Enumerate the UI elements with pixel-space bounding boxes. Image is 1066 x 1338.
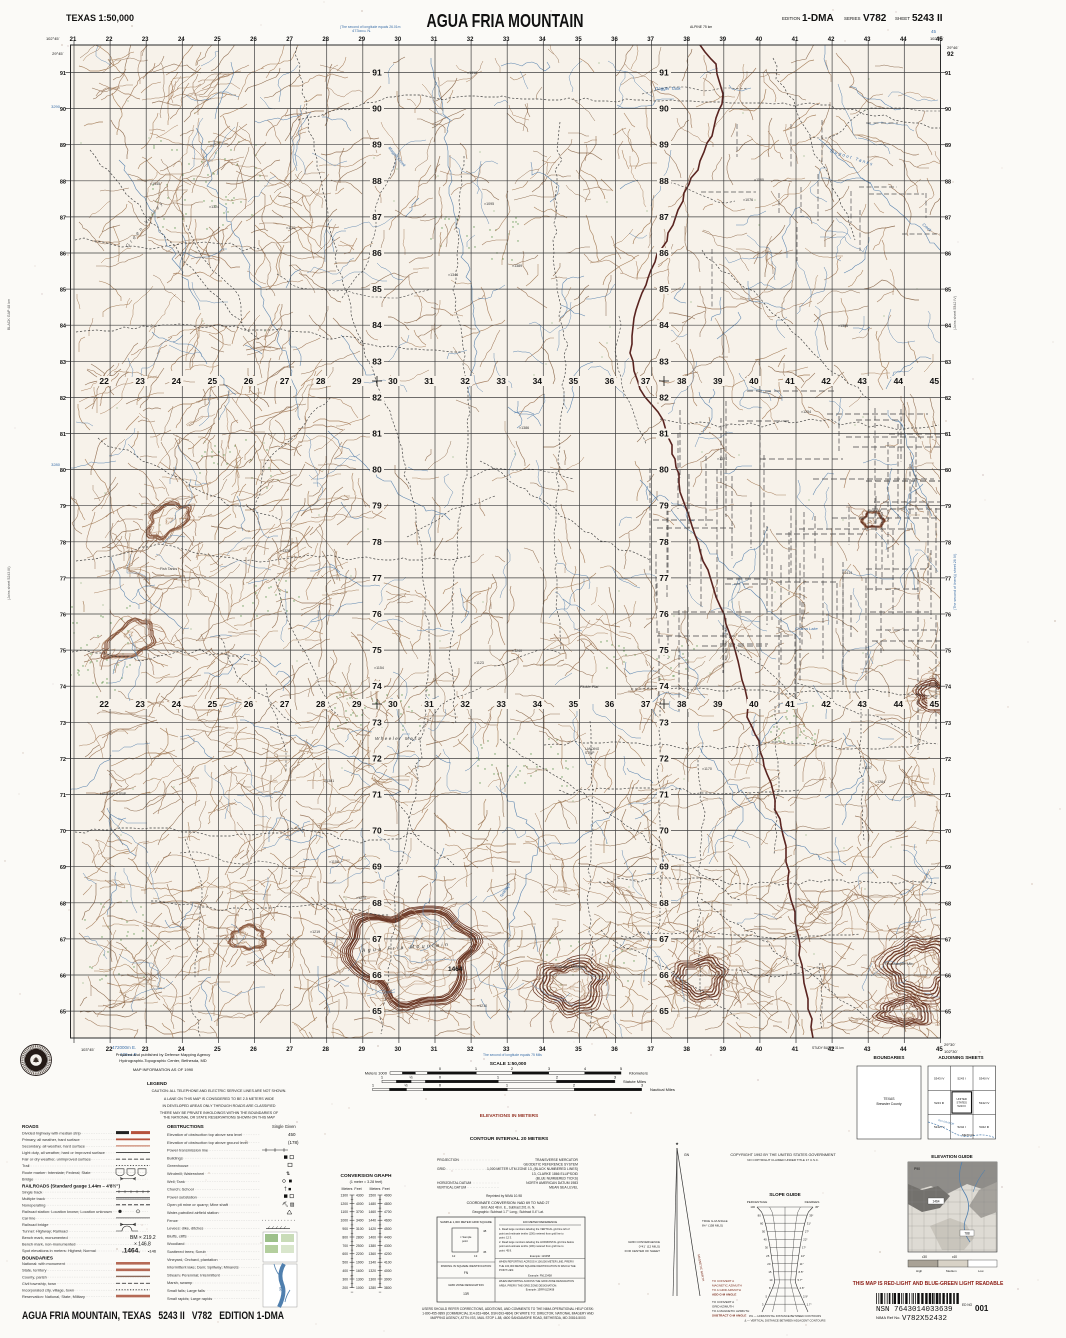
svg-text:3290: 3290	[51, 104, 61, 109]
svg-text:1420: 1420	[368, 1227, 376, 1231]
svg-text:38: 38	[677, 699, 687, 709]
svg-text:The second of longitude equals: The second of longitude equals 75 Mils	[483, 1053, 542, 1057]
svg-text:29: 29	[358, 1047, 365, 1053]
svg-text:THERE MAY BE PRIVATE INHOL: THERE MAY BE PRIVATE INHOLDINGS WITHIN T…	[160, 1111, 279, 1115]
svg-text:81: 81	[60, 432, 66, 438]
svg-text:82: 82	[659, 392, 669, 402]
svg-text:1440: 1440	[368, 1219, 376, 1223]
svg-text:1280: 1280	[368, 1286, 376, 1290]
svg-text:×1180: ×1180	[754, 178, 764, 182]
svg-text:Fair or dry weather, unimprove: Fair or dry weather, unimproved surface	[22, 1157, 91, 1162]
svg-text:STRIP: STRIP	[585, 751, 594, 755]
svg-text:31°: 31°	[807, 1221, 811, 1225]
svg-text:point and estimate tenths (100: point and estimate tenths (100) metered …	[499, 1231, 564, 1235]
svg-text:66: 66	[60, 974, 66, 980]
svg-text:28: 28	[322, 1047, 329, 1053]
svg-text:3: 3	[614, 1075, 617, 1080]
svg-text:70: 70	[60, 829, 66, 835]
svg-text:Bench mark, monumented: Bench mark, monumented	[22, 1235, 68, 1240]
svg-text:Example: FN123458: Example: FN123458	[528, 1274, 552, 1278]
svg-text:Wheeler Mesa: Wheeler Mesa	[375, 736, 422, 741]
svg-text:Primary, all weather, hard sur: Primary, all weather, hard surface	[22, 1137, 80, 1142]
svg-text:AGUA FRIA MOUNTAIN, TEXAS 52: AGUA FRIA MOUNTAIN, TEXAS 5243 II V782 E…	[22, 1310, 284, 1322]
svg-text:COORDINATE CONVERSION: NAD 69: COORDINATE CONVERSION: NAD 69 TO NAD 27	[467, 1201, 550, 1205]
svg-text:45°: 45°	[815, 1205, 819, 1209]
svg-text:87: 87	[372, 212, 382, 222]
svg-text:5342 IV: 5342 IV	[979, 1101, 989, 1105]
svg-text:VERTICAL DATUM: VERTICAL DATUM	[437, 1186, 466, 1190]
svg-text:39: 39	[713, 376, 723, 386]
svg-text:Reservation: National, State,: Reservation: National, State, Military	[22, 1294, 85, 1299]
svg-text:25: 25	[208, 376, 218, 386]
svg-text:Grid: Add 48 m. E., Subtra: Grid: Add 48 m. E., Subtract 201 m. N.	[481, 1206, 536, 1210]
svg-text:Dagger Tank: Dagger Tank	[655, 86, 681, 91]
svg-text:FOR CENTER OF SHEET: FOR CENTER OF SHEET	[625, 1249, 661, 1253]
svg-text:×1154: ×1154	[374, 666, 384, 670]
svg-text:Bridge: Bridge	[22, 1176, 33, 1181]
svg-text:102°30´: 102°30´	[944, 1049, 958, 1054]
svg-text:ELEVATIONS IN METERS: ELEVATIONS IN METERS	[480, 1113, 539, 1119]
svg-text:70: 70	[659, 826, 669, 836]
svg-text:69: 69	[372, 862, 382, 872]
svg-text:1: 1	[497, 1075, 500, 1080]
svg-text:Secondary, all weather, hard s: Secondary, all weather, hard surface	[22, 1144, 85, 1149]
svg-text:21: 21	[70, 37, 77, 43]
svg-text:TO CONVERT A: TO CONVERT A	[712, 1300, 734, 1304]
svg-text:5243 I: 5243 I	[958, 1077, 967, 1081]
svg-text:Single track: Single track	[22, 1189, 42, 1194]
svg-text:Multiple track: Multiple track	[22, 1196, 45, 1201]
svg-text:74: 74	[60, 685, 67, 691]
svg-text:.1464.: .1464.	[122, 1247, 140, 1254]
svg-text:5342 III: 5342 III	[979, 1125, 989, 1129]
svg-text:8¾° (158 MILS): 8¾° (158 MILS)	[702, 1224, 723, 1228]
svg-text:1300: 1300	[340, 1193, 348, 1197]
svg-text:24: 24	[172, 376, 182, 386]
svg-text:MAGNETIC NORTH: MAGNETIC NORTH	[697, 1254, 706, 1282]
svg-text:72: 72	[372, 753, 382, 763]
svg-text:68: 68	[659, 898, 669, 908]
svg-text:80: 80	[758, 1213, 762, 1217]
svg-text:71: 71	[659, 790, 669, 800]
svg-text:45: 45	[930, 699, 940, 709]
svg-text:29°45´: 29°45´	[52, 51, 64, 56]
svg-text:TEXAS 1:50,000: TEXAS 1:50,000	[66, 13, 134, 23]
svg-text:79: 79	[372, 501, 382, 511]
svg-text:44: 44	[900, 1047, 907, 1053]
svg-text:HORIZONTAL DATUM: HORIZONTAL DATUM	[437, 1181, 471, 1185]
svg-text:37: 37	[641, 699, 651, 709]
svg-text:22: 22	[99, 376, 109, 386]
svg-text:80: 80	[60, 468, 66, 474]
svg-text:MEXICO: MEXICO	[962, 1133, 975, 1137]
svg-text:1380: 1380	[368, 1244, 376, 1248]
svg-text:83: 83	[659, 356, 669, 366]
svg-text:13R: 13R	[463, 1292, 470, 1296]
svg-text:17°: 17°	[802, 1246, 806, 1250]
svg-text:⛏ ▨: ⛏ ▨	[282, 1201, 295, 1208]
svg-text:2: 2	[556, 1075, 559, 1080]
svg-text:Example: 13RFN123458: Example: 13RFN123458	[526, 1288, 555, 1292]
svg-text:NO COPYRIGHT CLAIMED UNDER TIT: NO COPYRIGHT CLAIMED UNDER TITLE 17 U.S.…	[747, 1158, 819, 1162]
svg-text:69: 69	[60, 865, 66, 871]
svg-text:FINDING IN SQUARE IDENTIFIC: FINDING IN SQUARE IDENTIFICATION	[441, 1264, 491, 1268]
svg-text:1464: 1464	[932, 1200, 939, 1204]
svg-text:NORTH AMERICAN DATUM 1983: NORTH AMERICAN DATUM 1983	[526, 1181, 578, 1185]
svg-text:Small rapids; Large rapids: Small rapids; Large rapids	[167, 1296, 212, 1301]
svg-text:79: 79	[60, 504, 66, 510]
svg-text:5242 I: 5242 I	[958, 1125, 967, 1129]
svg-text:•146: •146	[148, 1248, 157, 1253]
svg-text:31: 31	[431, 1047, 438, 1053]
svg-text:×1345: ×1345	[150, 182, 160, 186]
svg-text:1300: 1300	[368, 1277, 376, 1281]
svg-text:SERIES: SERIES	[844, 16, 861, 21]
svg-text:76: 76	[659, 609, 669, 619]
svg-text:27: 27	[280, 376, 290, 386]
svg-text:30: 30	[395, 37, 402, 43]
svg-text:OBSTRUCTIONS: OBSTRUCTIONS	[167, 1124, 204, 1129]
svg-text:Scattered trees; Scrub: Scattered trees; Scrub	[167, 1249, 206, 1254]
svg-text:36: 36	[611, 1047, 618, 1053]
svg-text:1400: 1400	[368, 1235, 376, 1239]
svg-text:36: 36	[611, 37, 618, 43]
svg-text:45: 45	[483, 1250, 487, 1254]
svg-text:5343 IV: 5343 IV	[934, 1077, 944, 1081]
svg-text:33: 33	[496, 699, 506, 709]
svg-text:28: 28	[316, 699, 326, 709]
svg-text:32: 32	[467, 37, 474, 43]
svg-text:4000: 4000	[356, 1202, 364, 1206]
svg-text:1340: 1340	[368, 1261, 376, 1265]
svg-text:11°: 11°	[800, 1262, 804, 1266]
svg-text:77: 77	[60, 576, 66, 582]
svg-text:3800: 3800	[384, 1286, 392, 1290]
svg-text:75: 75	[60, 649, 66, 655]
svg-text:36: 36	[605, 699, 615, 709]
svg-text:SAMPLE 1,000 METER GRID SQ: SAMPLE 1,000 METER GRID SQUARE	[440, 1220, 492, 1224]
svg-text:88: 88	[60, 179, 66, 185]
svg-text:×1324: ×1324	[209, 205, 219, 209]
svg-text:39: 39	[719, 1047, 726, 1053]
svg-text:3: 3	[548, 1066, 551, 1071]
svg-text:88: 88	[659, 176, 669, 186]
svg-text:1.7°: 1.7°	[807, 1302, 812, 1306]
svg-text:74: 74	[945, 685, 952, 691]
svg-text:74: 74	[659, 681, 669, 691]
svg-text:×1210: ×1210	[477, 1004, 487, 1008]
svg-text:2800: 2800	[356, 1235, 364, 1239]
svg-text:FN: FN	[464, 1271, 469, 1275]
svg-text:89: 89	[372, 140, 382, 150]
svg-text:25: 25	[214, 1047, 221, 1053]
svg-text:77: 77	[945, 576, 951, 582]
svg-text:86: 86	[60, 252, 66, 258]
svg-text:1300: 1300	[356, 1277, 364, 1281]
svg-text:103°45´: 103°45´	[81, 1047, 95, 1052]
svg-text:200: 200	[342, 1286, 348, 1290]
svg-text:×1324: ×1324	[717, 457, 727, 461]
svg-text:4400: 4400	[384, 1235, 392, 1239]
svg-text:1480: 1480	[368, 1202, 376, 1206]
svg-text:4800: 4800	[384, 1202, 392, 1206]
svg-text:39: 39	[719, 37, 726, 43]
svg-text:4700: 4700	[384, 1210, 392, 1214]
svg-text:33: 33	[496, 376, 506, 386]
svg-text:BOUNDARIES: BOUNDARIES	[22, 1255, 53, 1260]
svg-text:80: 80	[659, 465, 669, 475]
svg-text:THE 100,000 METER SQUARE I: THE 100,000 METER SQUARE IDENTIFICATION …	[499, 1264, 576, 1268]
svg-text:High: High	[916, 1269, 923, 1273]
svg-text:4500: 4500	[384, 1227, 392, 1231]
svg-text:4.6°: 4.6°	[800, 1286, 805, 1290]
svg-text:41: 41	[792, 37, 799, 43]
svg-text:×1167: ×1167	[862, 766, 872, 770]
svg-text:2. Read large numbers labelin: 2. Read large numbers labeling the HORIZ…	[499, 1240, 574, 1244]
svg-text:42: 42	[828, 37, 835, 43]
svg-text:GEODETIC REFERENCE SYSTEM: GEODETIC REFERENCE SYSTEM	[524, 1163, 579, 1167]
svg-text:300: 300	[342, 1277, 348, 1281]
svg-text:32: 32	[460, 699, 470, 709]
svg-text:800: 800	[342, 1235, 348, 1239]
svg-text:Feet: Feet	[354, 1187, 361, 1191]
svg-text:Geographic: Subtract 1.7" Lo: Geographic: Subtract 1.7" Long.; Subtrac…	[472, 1210, 544, 1214]
svg-text:1000: 1000	[340, 1219, 348, 1223]
svg-text:1-800-455-0899 (COMMERCIAL 314: 1-800-455-0899 (COMMERCIAL 314-263-4864,…	[422, 1312, 594, 1316]
svg-text:BLACK GAP 48 km: BLACK GAP 48 km	[7, 299, 11, 330]
svg-text:Example: 123458: Example: 123458	[530, 1254, 551, 1258]
svg-text:DEGREES: DEGREES	[805, 1200, 820, 1204]
svg-text:PERCENTAGE: PERCENTAGE	[747, 1200, 767, 1204]
svg-text:Church; School: Church; School	[167, 1187, 194, 1192]
svg-text:1464: 1464	[448, 966, 463, 973]
svg-text:Meters: Meters	[342, 1187, 353, 1191]
svg-text:23: 23	[135, 699, 145, 709]
svg-text:point: 12 3.: point: 12 3.	[499, 1236, 512, 1240]
svg-text:IN DEVELOPED AREAS ONLY TH: IN DEVELOPED AREAS ONLY THROUGH ROADS AR…	[162, 1104, 275, 1108]
svg-text:Marsh, swamp: Marsh, swamp	[167, 1280, 192, 1285]
svg-text:26: 26	[250, 1047, 257, 1053]
svg-text:0: 0	[439, 1083, 442, 1088]
svg-text:75: 75	[945, 649, 951, 655]
svg-text:27: 27	[286, 37, 293, 43]
svg-text:point: 45 8.: point: 45 8.	[499, 1249, 512, 1253]
svg-text:5243 II: 5243 II	[957, 1104, 966, 1108]
svg-text:68: 68	[372, 898, 382, 908]
svg-text:26: 26	[250, 37, 257, 43]
svg-text:NSN 7643014033639: NSN 7643014033639	[876, 1306, 953, 1314]
svg-text:TRUE G-M ANGLE: TRUE G-M ANGLE	[702, 1219, 728, 1223]
svg-text:80: 80	[945, 468, 951, 474]
svg-text:(178): (178)	[288, 1140, 299, 1145]
svg-text:Vineyard, Orchard, plantation: Vineyard, Orchard, plantation	[167, 1257, 218, 1262]
svg-text:77: 77	[659, 573, 669, 583]
svg-text:67: 67	[659, 934, 669, 944]
svg-text:84: 84	[60, 324, 67, 330]
svg-text:81: 81	[945, 432, 951, 438]
svg-text:69: 69	[945, 865, 951, 871]
svg-text:Fence: Fence	[167, 1218, 178, 1223]
svg-text:22: 22	[99, 699, 109, 709]
svg-text:43: 43	[857, 376, 867, 386]
svg-text:88: 88	[372, 176, 382, 186]
svg-text:38: 38	[683, 1047, 690, 1053]
svg-text:Elevation of obstruction top a: Elevation of obstruction top above sea l…	[167, 1132, 242, 1137]
svg-text:SHEET: SHEET	[895, 16, 910, 21]
svg-text:25: 25	[214, 37, 221, 43]
svg-text:1: 1	[372, 1083, 375, 1088]
svg-text:Low: Low	[978, 1269, 984, 1273]
svg-text:V782X52432: V782X52432	[902, 1315, 947, 1323]
svg-text:Feet: Feet	[382, 1187, 389, 1191]
svg-text:×1414: ×1414	[842, 571, 852, 575]
svg-text:67: 67	[372, 934, 382, 944]
svg-text:23: 23	[142, 37, 149, 43]
svg-text:28: 28	[316, 376, 326, 386]
svg-text:65: 65	[945, 1010, 951, 1016]
svg-text:Small falls; Large falls: Small falls; Large falls	[167, 1288, 205, 1293]
svg-text:Meters: Meters	[370, 1187, 381, 1191]
svg-text:V782: V782	[863, 13, 887, 24]
svg-text:76: 76	[945, 613, 951, 619]
svg-text:×1386: ×1386	[838, 324, 848, 328]
svg-text:82: 82	[945, 396, 951, 402]
svg-text:Brewster County: Brewster County	[876, 1102, 901, 1106]
svg-text:67: 67	[60, 937, 66, 943]
svg-text:29: 29	[352, 699, 362, 709]
svg-text:82: 82	[372, 392, 382, 402]
svg-text:86: 86	[372, 248, 382, 258]
svg-text:ED NO: ED NO	[962, 1303, 973, 1307]
svg-text:•30: •30	[922, 1255, 927, 1259]
svg-text:91: 91	[372, 68, 382, 78]
svg-text:Power substation: Power substation	[167, 1194, 197, 1199]
svg-text:WHEN REPORTING ACROSS A 10: WHEN REPORTING ACROSS A 100,000 METER LI…	[499, 1260, 574, 1264]
svg-text:4300: 4300	[356, 1193, 364, 1197]
svg-text:MAP INFORMATION AS OF 1990: MAP INFORMATION AS OF 1990	[133, 1067, 194, 1072]
svg-text:Paisano Mountain: Paisano Mountain	[555, 964, 588, 969]
svg-text:BOUNDARIES: BOUNDARIES	[874, 1055, 905, 1060]
svg-text:85: 85	[659, 284, 669, 294]
svg-text:GRID ZONE DESIGNATION: GRID ZONE DESIGNATION	[448, 1283, 483, 1287]
svg-text:×1240: ×1240	[512, 649, 522, 653]
svg-text:4000: 4000	[384, 1269, 392, 1273]
svg-text:45: 45	[930, 376, 940, 386]
svg-text:5243 III: 5243 III	[934, 1101, 944, 1105]
svg-text:32: 32	[467, 1047, 474, 1053]
svg-text:28: 28	[322, 37, 329, 43]
svg-text:ALPINE 75 km: ALPINE 75 km	[690, 25, 712, 29]
svg-text:MAGNETIC AZIMUTH: MAGNETIC AZIMUTH	[712, 1284, 742, 1288]
svg-text:Water-patrolled airfield stati: Water-patrolled airfield station	[167, 1210, 219, 1215]
svg-text:26: 26	[244, 376, 254, 386]
svg-text:27°: 27°	[805, 1230, 809, 1234]
svg-text:ADD G-M ANGLE: ADD G-M ANGLE	[712, 1293, 736, 1297]
svg-text:34: 34	[539, 37, 546, 43]
svg-text:0% — HORIZONTAL DISTANCE BETWE: 0% — HORIZONTAL DISTANCE BETWEEN CONTOUR…	[749, 1314, 821, 1318]
svg-text:Medium: Medium	[946, 1269, 957, 1273]
svg-text:69: 69	[659, 862, 669, 872]
svg-text:×1284: ×1284	[875, 780, 885, 784]
svg-text:TRANSVERSE MERCATOR: TRANSVERSE MERCATOR	[535, 1158, 579, 1162]
svg-text:CAUTION: ALL TELEPHONE AND: CAUTION: ALL TELEPHONE AND ELECTRIC SERV…	[152, 1089, 287, 1093]
svg-text:Chama Lake: Chama Lake	[795, 626, 818, 631]
svg-text:88: 88	[945, 179, 951, 185]
svg-text:NIMA Ref No.: NIMA Ref No.	[876, 1315, 900, 1320]
svg-text:point: point	[462, 1239, 468, 1243]
svg-text:72: 72	[659, 753, 669, 763]
svg-text:State, territory: State, territory	[22, 1268, 46, 1273]
svg-text:600: 600	[342, 1252, 348, 1256]
svg-text:89: 89	[659, 140, 669, 150]
svg-text:Route marker: Interstate; Fede: Route marker: Interstate; Federal; State	[22, 1170, 91, 1175]
svg-text:90: 90	[372, 104, 382, 114]
svg-text:1100: 1100	[341, 1210, 348, 1214]
svg-text:Buildings: Buildings	[167, 1155, 183, 1160]
svg-text:3400: 3400	[356, 1219, 364, 1223]
svg-text:30: 30	[388, 699, 398, 709]
svg-text:THIS MAP IS RED-LIGHT AND BLUE: THIS MAP IS RED-LIGHT AND BLUE-GREEN LIG…	[853, 1281, 1004, 1287]
svg-text:472000m E.: 472000m E.	[112, 1045, 136, 1050]
svg-text:×1418: ×1418	[467, 71, 477, 75]
svg-text:Packsaddle Mtn: Packsaddle Mtn	[885, 961, 914, 966]
svg-text:77: 77	[372, 573, 382, 583]
svg-text:86: 86	[945, 252, 951, 258]
svg-text:85: 85	[60, 288, 66, 294]
svg-text:Elevation of obstruction top a: Elevation of obstruction top above groun…	[167, 1140, 248, 1145]
svg-text:Fish Tanks: Fish Tanks	[160, 567, 177, 571]
svg-text:Railroad station: Location kno: Railroad station: Location known; Locati…	[22, 1209, 112, 1214]
svg-text:67: 67	[945, 937, 951, 943]
svg-text:×1389: ×1389	[512, 264, 522, 268]
svg-text:78: 78	[60, 540, 66, 546]
svg-text:5340 IV: 5340 IV	[979, 1077, 989, 1081]
svg-text:Bench mark, non-monumented: Bench mark, non-monumented	[22, 1242, 75, 1247]
svg-text:Windmill; Waterwheel: Windmill; Waterwheel	[167, 1171, 204, 1176]
svg-text:Divided highway with median st: Divided highway with median strip	[22, 1131, 81, 1136]
svg-text:66: 66	[372, 970, 382, 980]
svg-text:⇅: ⇅	[286, 1171, 290, 1177]
svg-text:37: 37	[647, 37, 654, 43]
svg-text:75: 75	[659, 645, 669, 655]
svg-text:Meters 1000: Meters 1000	[365, 1071, 388, 1076]
svg-text:Greenhouse: Greenhouse	[167, 1163, 188, 1168]
svg-text:68: 68	[945, 901, 951, 907]
svg-text:43: 43	[864, 1047, 871, 1053]
svg-text:29: 29	[358, 37, 365, 43]
svg-text:40: 40	[749, 699, 759, 709]
svg-text:Bluffs, cliffs: Bluffs, cliffs	[167, 1233, 187, 1238]
svg-text:25: 25	[208, 699, 218, 709]
svg-text:84: 84	[659, 320, 669, 330]
svg-text:24: 24	[178, 37, 185, 43]
svg-text:A LANE ON THIS MAP IS CO: A LANE ON THIS MAP IS CONSIDERED TO BE 2…	[164, 1097, 275, 1101]
svg-text:89: 89	[945, 143, 951, 149]
svg-text:100: 100	[750, 1205, 755, 1209]
svg-text:8: 8	[769, 1286, 771, 1290]
svg-text:County, parish: County, parish	[22, 1274, 47, 1279]
svg-text:0: 0	[439, 1075, 442, 1080]
svg-text:Civil township, town: Civil township, town	[22, 1281, 56, 1286]
svg-text:1000: 1000	[356, 1286, 364, 1290]
svg-text:35: 35	[569, 699, 579, 709]
svg-text:102°45´: 102°45´	[46, 36, 60, 41]
svg-text:31: 31	[424, 699, 434, 709]
svg-text:40: 40	[756, 1047, 763, 1053]
svg-text:37: 37	[641, 376, 651, 386]
svg-text:44: 44	[894, 376, 904, 386]
svg-text:66: 66	[945, 974, 951, 980]
